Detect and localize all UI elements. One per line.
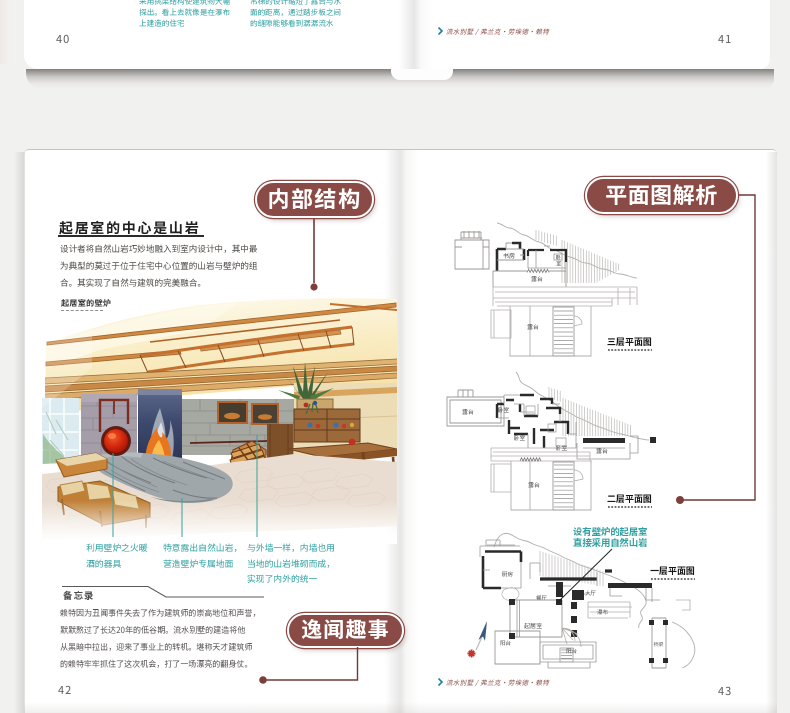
svg-text:三层平面图: 三层平面图: [607, 335, 652, 348]
svg-text:厨房: 厨房: [501, 570, 514, 578]
svg-text:瀑布: 瀑布: [597, 608, 608, 616]
svg-text:露台: 露台: [527, 322, 539, 331]
svg-text:卧室: 卧室: [498, 406, 510, 414]
svg-text:露台: 露台: [596, 446, 608, 455]
svg-text:餐厅: 餐厅: [536, 594, 548, 602]
svg-text:大厅: 大厅: [585, 589, 597, 597]
svg-text:书房: 书房: [503, 251, 515, 260]
svg-text:露台: 露台: [528, 480, 540, 489]
svg-text:一层平面图: 一层平面图: [650, 564, 695, 577]
svg-text:露台: 露台: [531, 274, 543, 283]
svg-text:卧室: 卧室: [514, 434, 526, 442]
svg-text:二层平面图: 二层平面图: [607, 492, 652, 505]
svg-text:阳台: 阳台: [500, 639, 512, 647]
svg-text:起居室: 起居室: [524, 621, 543, 630]
svg-text:阳台: 阳台: [566, 647, 578, 655]
svg-text:露台: 露台: [462, 407, 474, 416]
svg-text:室: 室: [556, 260, 561, 267]
svg-text:桥梁: 桥梁: [654, 641, 664, 648]
